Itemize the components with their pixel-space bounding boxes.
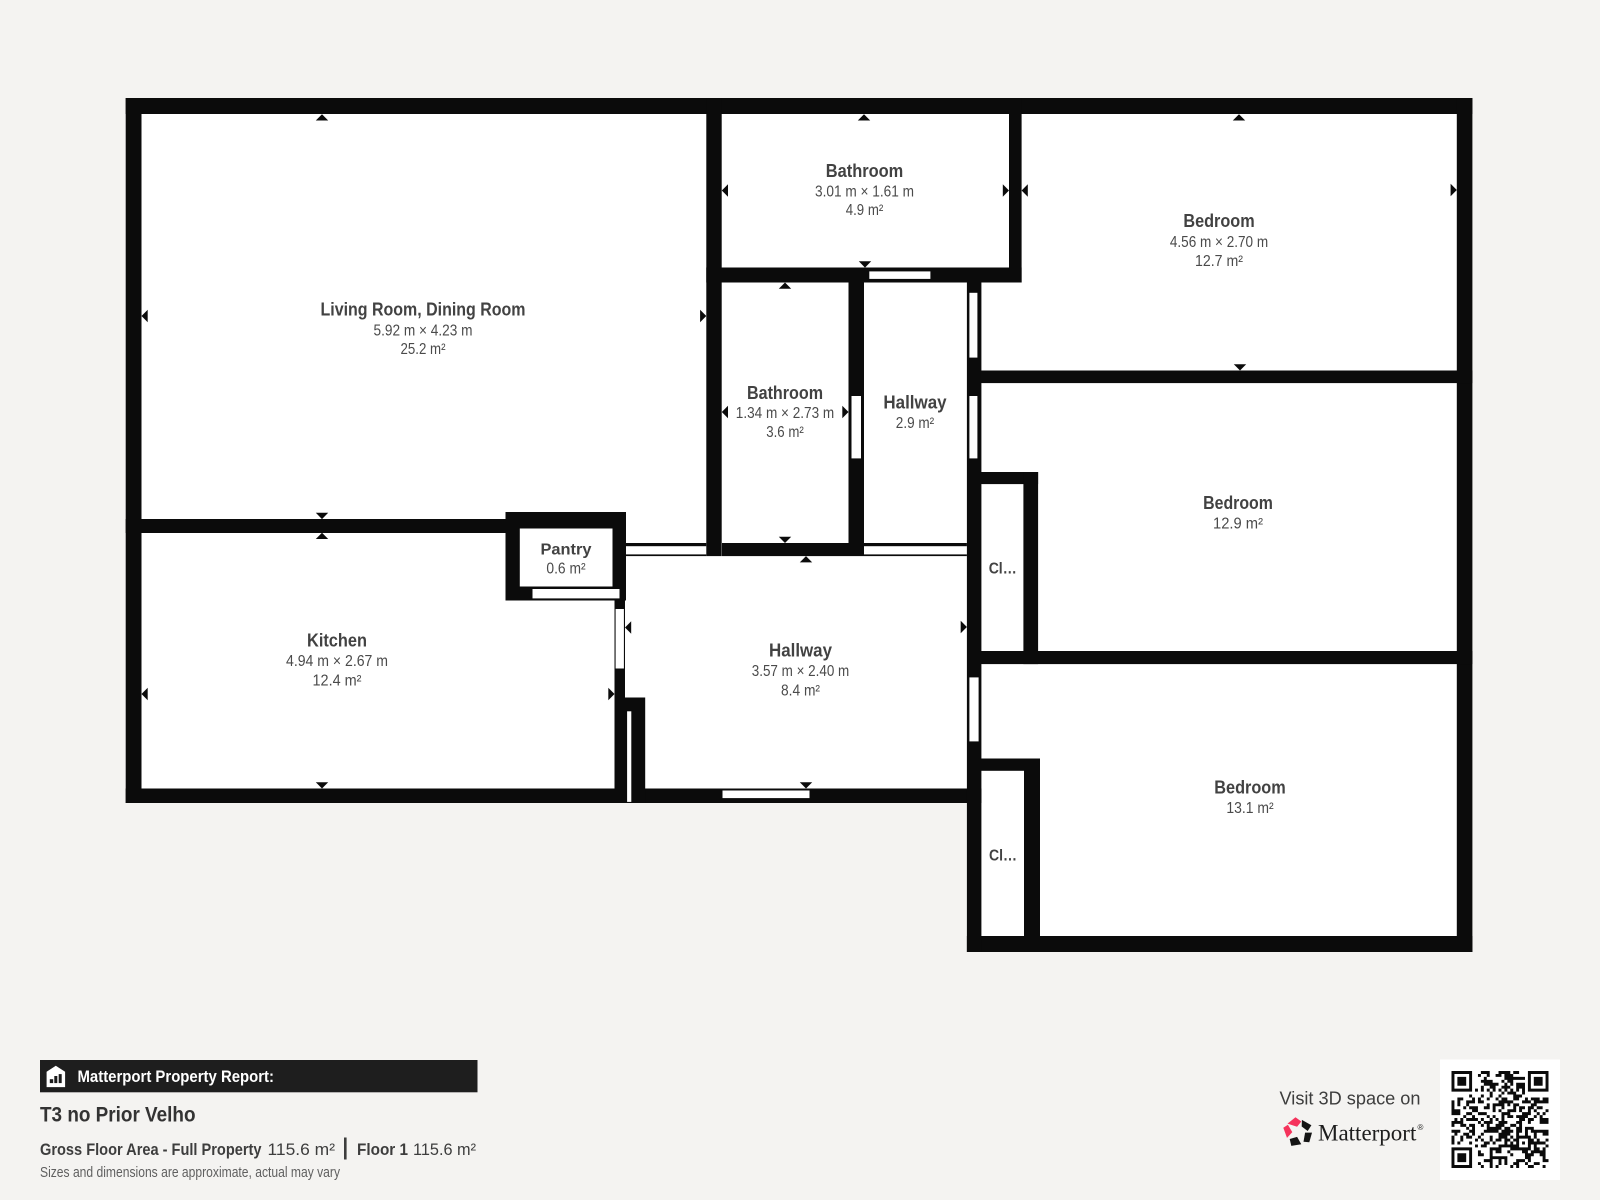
svg-text:3.57 m × 2.40 m: 3.57 m × 2.40 m (752, 663, 850, 680)
svg-text:5.92 m × 4.23 m: 5.92 m × 4.23 m (374, 323, 473, 340)
svg-text:25.2 m²: 25.2 m² (401, 341, 446, 358)
svg-text:Cl…: Cl… (989, 561, 1017, 578)
svg-text:Hallway: Hallway (769, 641, 832, 661)
svg-text:0.6 m²: 0.6 m² (546, 561, 585, 578)
svg-text:Bedroom: Bedroom (1183, 211, 1254, 231)
svg-text:3.6 m²: 3.6 m² (766, 424, 804, 441)
svg-text:Hallway: Hallway (883, 393, 946, 413)
svg-text:Living Room, Dining Room: Living Room, Dining Room (321, 300, 526, 320)
svg-text:Matterport Property Report:: Matterport Property Report: (78, 1068, 275, 1086)
svg-text:Sizes and dimensions are appro: Sizes and dimensions are approximate, ac… (40, 1165, 341, 1181)
svg-text:T3 no Prior Velho: T3 no Prior Velho (40, 1104, 196, 1127)
svg-text:Kitchen: Kitchen (307, 631, 367, 651)
svg-text:12.4 m²: 12.4 m² (313, 673, 362, 690)
svg-text:12.9 m²: 12.9 m² (1213, 516, 1263, 533)
svg-text:®: ® (1418, 1123, 1424, 1132)
svg-text:Bedroom: Bedroom (1214, 778, 1286, 798)
svg-text:13.1 m²: 13.1 m² (1226, 800, 1273, 817)
svg-text:3.01 m × 1.61 m: 3.01 m × 1.61 m (815, 184, 914, 201)
svg-text:4.56 m × 2.70 m: 4.56 m × 2.70 m (1170, 234, 1268, 251)
svg-text:Cl…: Cl… (989, 848, 1017, 865)
svg-text:Visit 3D space on: Visit 3D space on (1280, 1089, 1421, 1109)
svg-text:Matterport: Matterport (1318, 1121, 1417, 1146)
svg-text:Floor 1: Floor 1 (357, 1140, 408, 1159)
svg-text:12.7 m²: 12.7 m² (1195, 253, 1243, 270)
svg-text:8.4 m²: 8.4 m² (781, 683, 820, 700)
svg-text:Bathroom: Bathroom (826, 161, 904, 181)
svg-text:4.9 m²: 4.9 m² (846, 202, 884, 219)
svg-text:115.6 m²: 115.6 m² (268, 1140, 336, 1159)
svg-text:Bedroom: Bedroom (1203, 493, 1273, 513)
svg-text:2.9 m²: 2.9 m² (896, 415, 934, 432)
svg-text:Bathroom: Bathroom (747, 383, 823, 403)
svg-text:115.6 m²: 115.6 m² (413, 1140, 476, 1159)
svg-text:1.34 m × 2.73 m: 1.34 m × 2.73 m (736, 405, 834, 422)
svg-text:Pantry: Pantry (541, 542, 592, 559)
svg-text:4.94 m × 2.67 m: 4.94 m × 2.67 m (286, 653, 388, 670)
svg-text:Gross Floor Area - Full Proper: Gross Floor Area - Full Property (40, 1140, 262, 1159)
